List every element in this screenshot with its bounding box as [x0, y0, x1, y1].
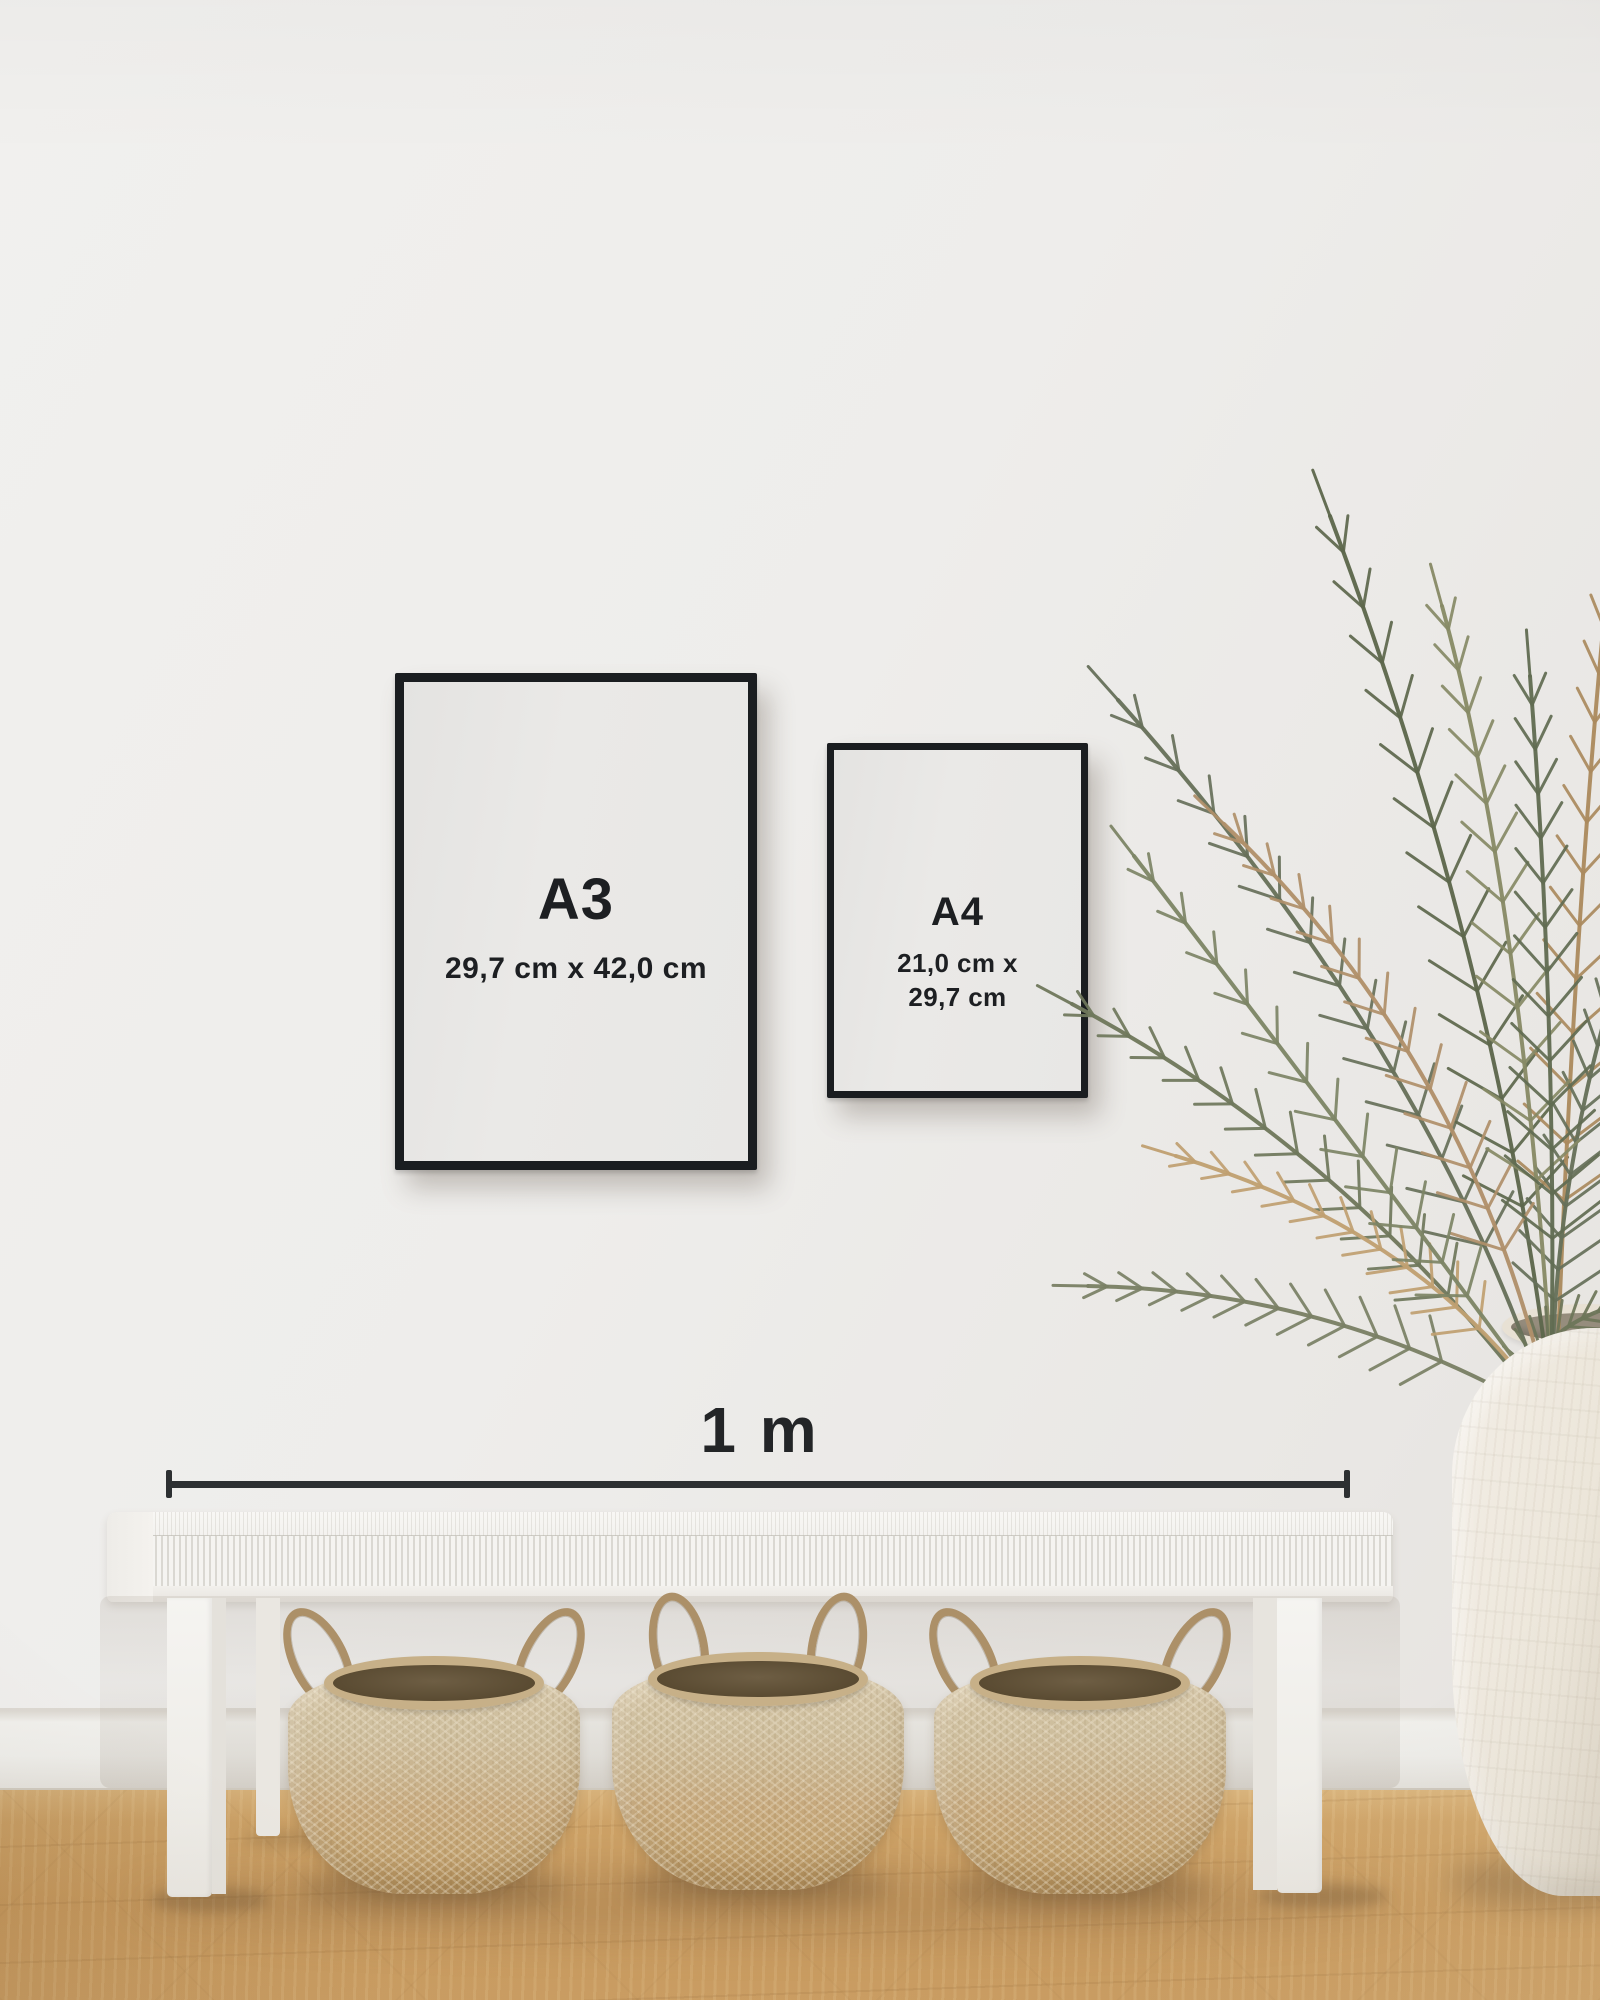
basket-opening [648, 1652, 868, 1706]
scale-bar [168, 1481, 1348, 1488]
a4-dimensions: 21,0 cm x 29,7 cm [897, 946, 1018, 1014]
scale-tick-right [1344, 1470, 1350, 1498]
scale-tick-left [166, 1470, 172, 1498]
basket-opening [324, 1656, 544, 1710]
basket-right [934, 1662, 1226, 1894]
a3-dimensions: 29,7 cm x 42,0 cm [445, 953, 707, 985]
a3-size-label: A3 [538, 871, 614, 929]
bench-leg-front-left [167, 1598, 212, 1897]
bench-seat [107, 1512, 1393, 1602]
bench-seat-top-weave [107, 1512, 1393, 1536]
bench-leg-right-side-face [1253, 1598, 1277, 1890]
a4-frame: A4 21,0 cm x 29,7 cm [827, 743, 1088, 1098]
basket-middle [612, 1658, 904, 1890]
a4-poster: A4 21,0 cm x 29,7 cm [834, 750, 1081, 1091]
poster-size-mockup-scene: A3 29,7 cm x 42,0 cm A4 21,0 cm x 29,7 c… [0, 0, 1600, 2000]
a4-dimensions-line2: 29,7 cm [897, 980, 1018, 1014]
a3-poster: A3 29,7 cm x 42,0 cm [404, 682, 748, 1161]
bench-seat-left-end [107, 1512, 153, 1602]
bench-seat-top-surface [107, 1512, 1393, 1536]
scale-label: 1 m [640, 1398, 880, 1462]
a3-frame: A3 29,7 cm x 42,0 cm [395, 673, 757, 1170]
bench-leg-front-right [1277, 1598, 1322, 1893]
a4-dimensions-line1: 21,0 cm x [897, 946, 1018, 980]
bench-leg-back-left [256, 1598, 280, 1836]
bench-leg-left-side-face [212, 1598, 226, 1894]
basket-opening [970, 1656, 1190, 1710]
basket-left [288, 1662, 580, 1894]
a4-size-label: A4 [931, 892, 984, 932]
